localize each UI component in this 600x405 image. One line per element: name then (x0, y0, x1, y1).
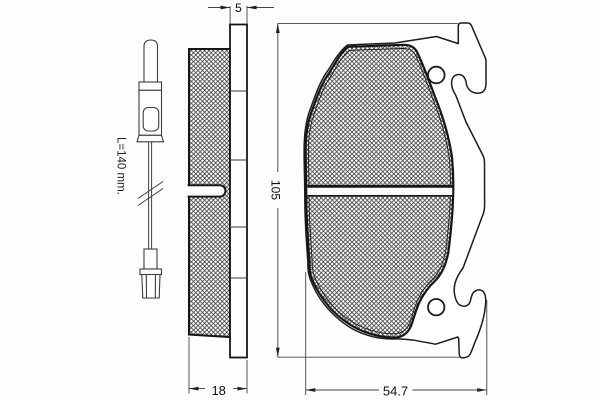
svg-text:54.7: 54.7 (383, 383, 408, 398)
svg-text:L=140 mm.: L=140 mm. (115, 137, 127, 195)
svg-text:18: 18 (211, 383, 225, 398)
svg-text:5: 5 (235, 1, 242, 15)
svg-text:105: 105 (269, 180, 283, 200)
